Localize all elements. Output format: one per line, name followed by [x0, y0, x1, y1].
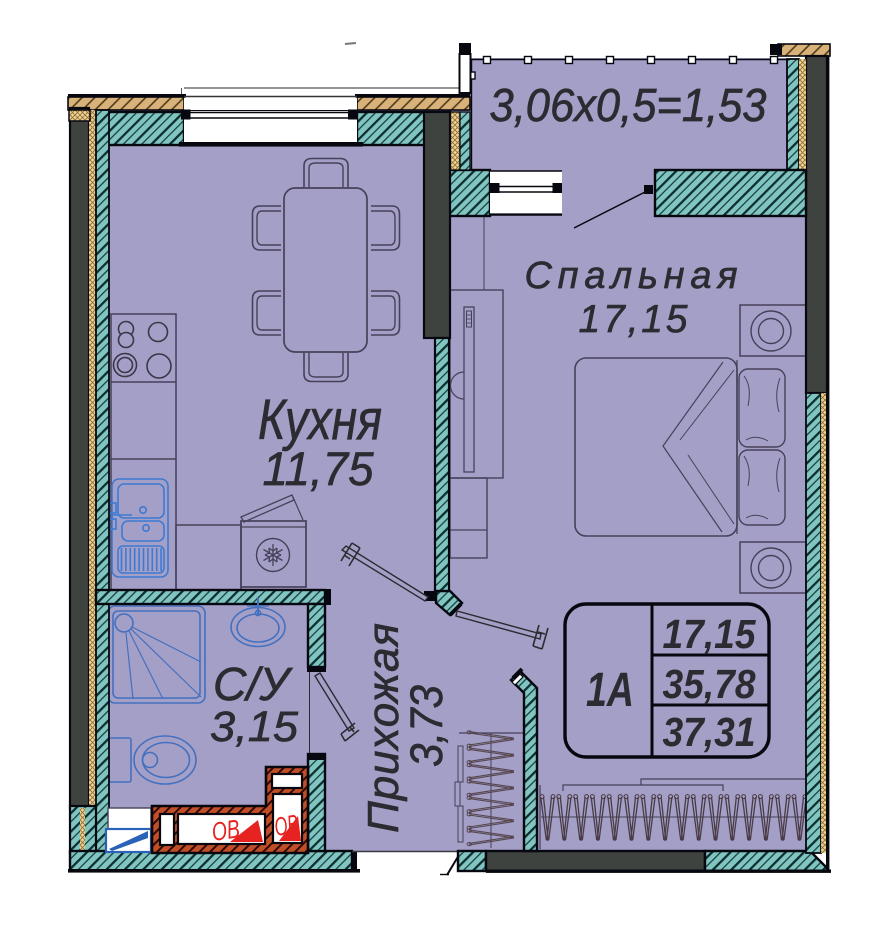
svg-text:11,75: 11,75: [263, 442, 375, 495]
svg-text:3,73: 3,73: [401, 685, 452, 767]
svg-text:3,06х0,5=1,53: 3,06х0,5=1,53: [490, 79, 767, 131]
svg-text:ОВ: ОВ: [272, 808, 301, 842]
svg-text:35,78: 35,78: [663, 661, 756, 707]
svg-text:37,31: 37,31: [663, 709, 756, 755]
svg-text:17,15: 17,15: [663, 611, 757, 657]
svg-text:3,15: 3,15: [210, 703, 299, 751]
svg-text:ОВ: ОВ: [210, 813, 242, 847]
svg-text:17,15: 17,15: [579, 298, 688, 341]
svg-text:1А: 1А: [586, 664, 634, 717]
